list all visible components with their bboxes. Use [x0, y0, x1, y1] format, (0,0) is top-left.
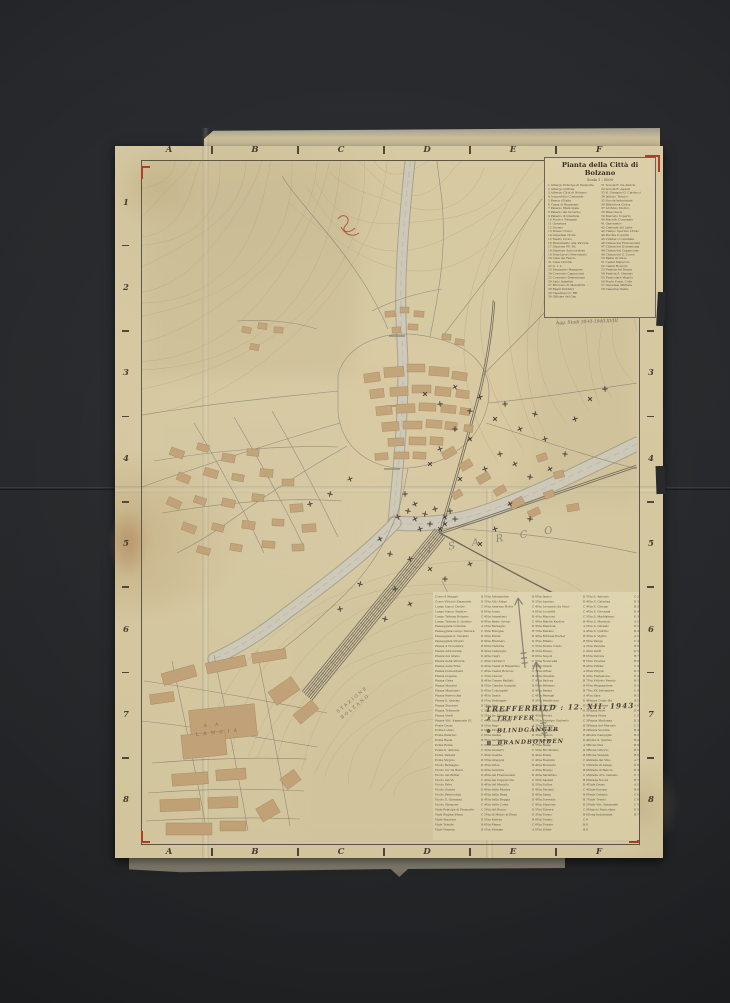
- building-block: [403, 421, 422, 429]
- building-block: [242, 520, 256, 530]
- building-block: [441, 404, 457, 414]
- building-block: [252, 493, 265, 501]
- photo-of-folded-map: ABCDEF ABCDEF 12345678 12345678 ISARCOS.…: [0, 0, 730, 1003]
- index-entry: Via UdineB 6: [537, 828, 588, 833]
- grid-letter: A: [126, 846, 212, 858]
- red-corner-mark: [645, 155, 660, 172]
- building-block: [392, 327, 401, 333]
- legend-entry: 30 Officine del Gas: [548, 296, 600, 300]
- building-block: [464, 424, 474, 432]
- grid-number: 5: [119, 502, 133, 587]
- grid-number: 5: [644, 502, 658, 587]
- grid-letter: D: [384, 846, 470, 858]
- building-block: [455, 338, 465, 345]
- grid-letter: F: [556, 846, 642, 858]
- building-block: [375, 452, 389, 460]
- building-block: [260, 469, 274, 478]
- legend-column-left: 1 Albergo Principe di Piemonte2 Albergo …: [548, 184, 600, 300]
- street: [148, 789, 304, 793]
- grid-number: 2: [119, 245, 133, 330]
- street: [152, 758, 307, 763]
- map-sheet-bottom-fold: [129, 857, 565, 877]
- grid-letter: C: [298, 144, 384, 156]
- index-entry: Zona IndustrialeB 7: [588, 813, 639, 818]
- building-block: [292, 544, 304, 551]
- index-entry: Viale VeneziaB 5: [435, 828, 486, 833]
- index-entry: Via FirmianA 6: [486, 828, 537, 833]
- building-block: [426, 419, 443, 428]
- handwritten-annotation: TREFFERBILD : 12. XII. 1943 ✗TREFFER⊗BLI…: [485, 701, 626, 750]
- grid-number: 3: [119, 331, 133, 416]
- building-block: [220, 821, 246, 831]
- grid-letters-top: ABCDEF: [126, 144, 642, 156]
- building-block: [262, 541, 275, 549]
- map-scale: Scala 1 : 5000: [545, 178, 655, 182]
- grid-letter: C: [298, 846, 384, 858]
- building-block: [407, 364, 425, 372]
- grid-number: 7: [119, 672, 133, 757]
- grid-letter: E: [470, 846, 556, 858]
- building-block: [247, 448, 260, 456]
- building-block: [274, 327, 283, 334]
- legend-column-right: 31 Scuola E. De Amicis32 Scuola R. Agazz…: [601, 184, 653, 292]
- building-block: [394, 452, 409, 459]
- building-block: [382, 421, 400, 431]
- grid-letter: B: [212, 846, 298, 858]
- building-block: [429, 366, 450, 376]
- street: [430, 161, 443, 337]
- building-block: [419, 403, 436, 412]
- grid-letter: B: [212, 144, 298, 156]
- building-block: [216, 768, 247, 781]
- building-block: [412, 385, 431, 393]
- building-block: [396, 404, 415, 414]
- building-block: [258, 322, 268, 329]
- grid-number: 6: [119, 587, 133, 672]
- building-block: [384, 366, 405, 377]
- building-block: [390, 387, 408, 397]
- building-block: [400, 307, 409, 313]
- title-block: Pianta della Città di Bolzano Scala 1 : …: [544, 157, 656, 318]
- building-block: [408, 324, 418, 330]
- grid-number: 8: [644, 758, 658, 843]
- grid-letter: F: [556, 144, 642, 156]
- building-block: [272, 519, 284, 526]
- building-block: [385, 311, 395, 318]
- building-block: [302, 524, 317, 533]
- building-block: [370, 388, 385, 399]
- building-block: [172, 772, 209, 786]
- building-block: [161, 665, 197, 686]
- building-block: [430, 437, 444, 446]
- building-block: [282, 479, 294, 486]
- map-title: Pianta della Città di Bolzano: [545, 158, 655, 177]
- building-block: [435, 386, 452, 396]
- building-block: [160, 798, 200, 811]
- building-block: [208, 796, 238, 808]
- building-block: [166, 823, 212, 835]
- grid-letters-bottom: ABCDEF: [126, 846, 642, 858]
- grid-number: 4: [644, 416, 658, 501]
- building-block: [409, 437, 426, 445]
- grid-numbers-left: 12345678: [119, 160, 133, 843]
- grid-number: 4: [119, 416, 133, 501]
- building-block: [451, 489, 463, 500]
- building-block: [493, 484, 507, 496]
- grid-letter: D: [384, 144, 470, 156]
- grid-number: 6: [644, 587, 658, 672]
- grid-number: 3: [644, 331, 658, 416]
- building-block: [290, 504, 304, 513]
- building-block: [442, 334, 451, 341]
- legend-entry: 58 Caserma Dante: [601, 288, 653, 292]
- grid-letter: A: [126, 144, 212, 156]
- building-block: [149, 691, 174, 704]
- grid-number: 1: [119, 160, 133, 245]
- building-block: [456, 389, 470, 399]
- building-block: [460, 407, 471, 415]
- building-block: [376, 405, 393, 416]
- building-block: [413, 452, 426, 460]
- building-block: [414, 311, 424, 318]
- building-block: [388, 438, 404, 447]
- grid-number: 7: [644, 672, 658, 757]
- street: [146, 818, 300, 821]
- building-block: [527, 507, 541, 518]
- grid-letter: E: [470, 144, 556, 156]
- grid-number: 8: [119, 758, 133, 843]
- index-column-1: Corso 9 MaggioB 5Corso Vittorio Emanuele…: [435, 595, 486, 833]
